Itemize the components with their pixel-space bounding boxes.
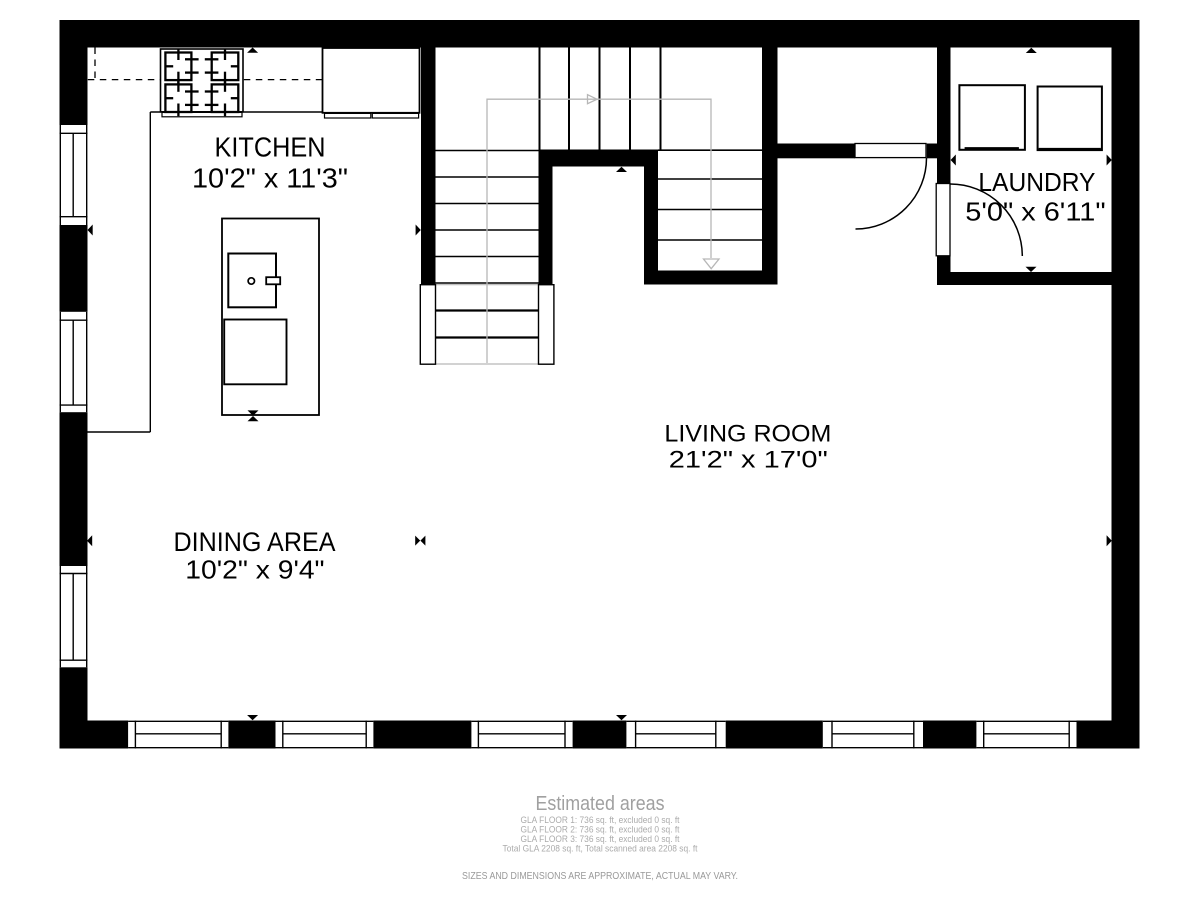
svg-text:5'0" x 6'11": 5'0" x 6'11" (965, 197, 1105, 227)
svg-text:DINING AREA: DINING AREA (174, 527, 336, 557)
svg-text:Estimated areas: Estimated areas (536, 793, 665, 815)
svg-text:SIZES AND DIMENSIONS ARE APPRO: SIZES AND DIMENSIONS ARE APPROXIMATE, AC… (462, 870, 738, 882)
svg-text:LIVING ROOM: LIVING ROOM (664, 421, 831, 448)
svg-text:GLA FLOOR 2: 736 sq. ft, exclu: GLA FLOOR 2: 736 sq. ft, excluded 0 sq. … (521, 825, 680, 835)
svg-text:21'2" x 17'0": 21'2" x 17'0" (669, 447, 828, 474)
svg-text:KITCHEN: KITCHEN (215, 132, 326, 163)
svg-text:10'2" x 11'3": 10'2" x 11'3" (192, 163, 348, 194)
svg-text:Total GLA 2208 sq. ft, Total s: Total GLA 2208 sq. ft, Total scanned are… (503, 844, 698, 854)
svg-text:10'2" x 9'4": 10'2" x 9'4" (185, 555, 324, 585)
svg-text:GLA FLOOR 3: 736 sq. ft, exclu: GLA FLOOR 3: 736 sq. ft, excluded 0 sq. … (521, 834, 680, 844)
svg-text:LAUNDRY: LAUNDRY (978, 167, 1095, 197)
svg-text:GLA FLOOR 1: 736 sq. ft, exclu: GLA FLOOR 1: 736 sq. ft, excluded 0 sq. … (521, 815, 680, 825)
